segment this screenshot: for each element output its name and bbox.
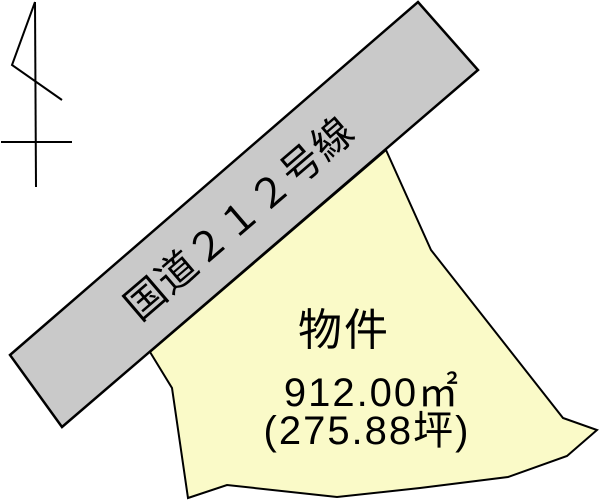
parcel-label: 物件 [298,306,390,355]
north-arrow-flag [12,2,62,100]
north-arrow-icon [1,2,72,187]
north-arrow-shaft [35,2,36,187]
site-plan: 国道２１２号線 物件 912.00㎡ (275.88坪) [0,0,600,500]
site-plan-canvas: 国道２１２号線 物件 912.00㎡ (275.88坪) [0,0,600,500]
parcel-tsubo-label: (275.88坪) [264,409,471,453]
